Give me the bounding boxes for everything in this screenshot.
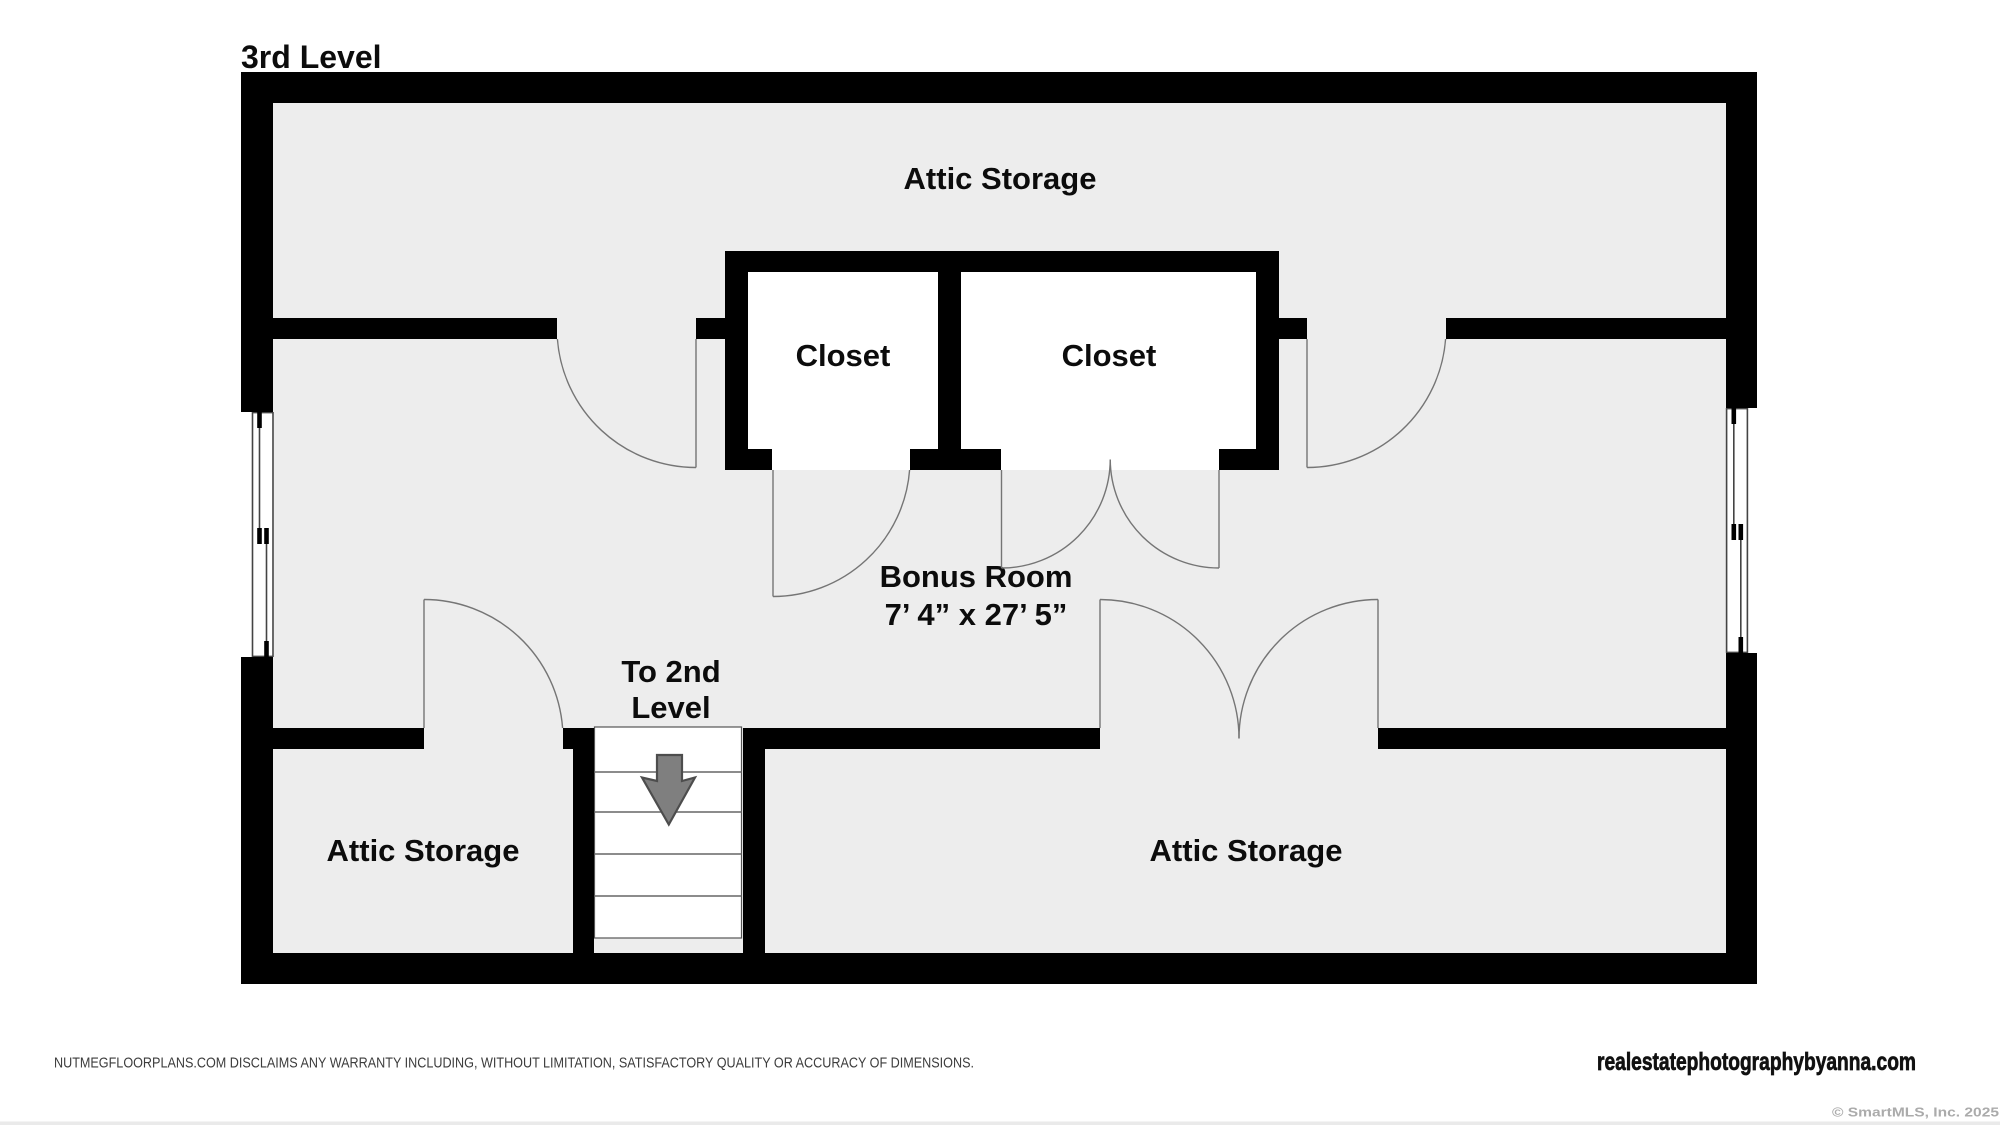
svg-text:To 2nd: To 2nd xyxy=(621,654,720,689)
svg-text:Closet: Closet xyxy=(1062,338,1157,373)
svg-text:7’ 4” x 27’ 5”: 7’ 4” x 27’ 5” xyxy=(885,597,1068,632)
svg-text:Attic Storage: Attic Storage xyxy=(904,161,1097,196)
svg-text:© SmartMLS, Inc. 2025: © SmartMLS, Inc. 2025 xyxy=(1832,1106,1999,1120)
svg-text:realestatephotographybyanna.co: realestatephotographybyanna.com xyxy=(1597,1048,1916,1076)
svg-text:Level: Level xyxy=(631,690,710,725)
svg-text:Attic Storage: Attic Storage xyxy=(327,833,520,868)
svg-text:Attic Storage: Attic Storage xyxy=(1150,833,1343,868)
svg-text:3rd Level: 3rd Level xyxy=(241,39,382,75)
svg-text:NUTMEGFLOORPLANS.COM DISCLAIMS: NUTMEGFLOORPLANS.COM DISCLAIMS ANY WARRA… xyxy=(54,1055,974,1072)
svg-text:Closet: Closet xyxy=(796,338,891,373)
svg-text:Bonus Room: Bonus Room xyxy=(880,559,1073,594)
